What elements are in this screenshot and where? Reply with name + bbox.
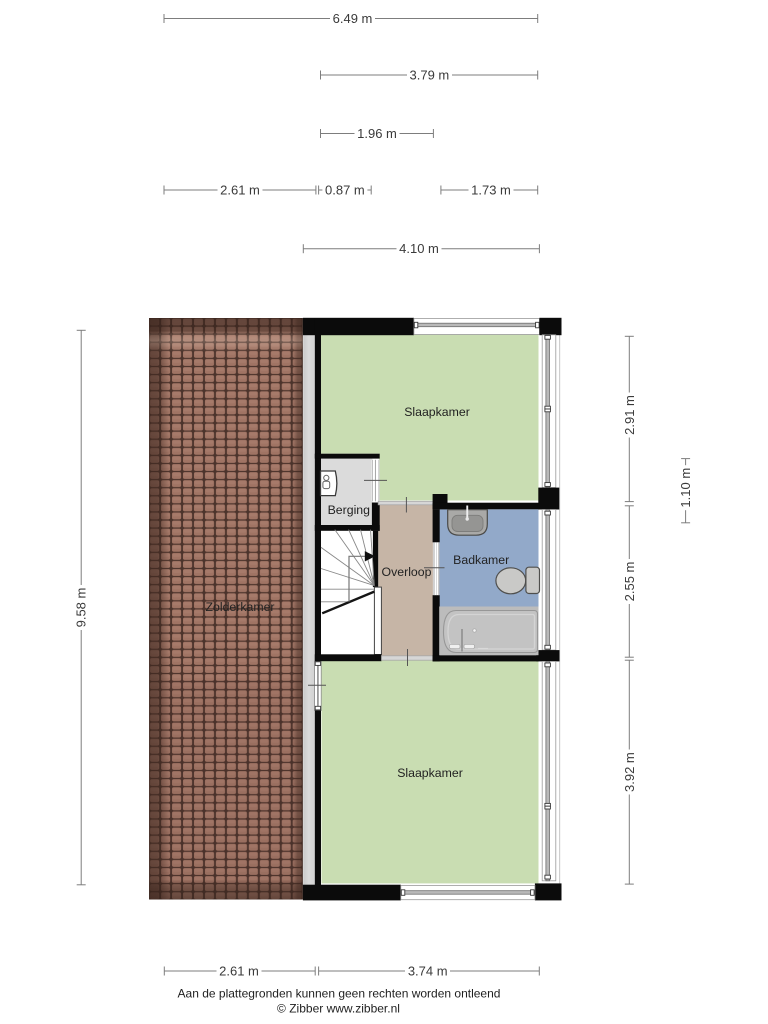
svg-text:Slaapkamer: Slaapkamer xyxy=(404,405,470,419)
svg-text:3.79 m: 3.79 m xyxy=(410,68,450,83)
svg-text:1.96 m: 1.96 m xyxy=(357,126,397,141)
svg-text:9.58 m: 9.58 m xyxy=(74,588,89,628)
svg-text:Badkamer: Badkamer xyxy=(453,553,509,567)
svg-text:0.87 m: 0.87 m xyxy=(325,183,365,198)
svg-text:6.49 m: 6.49 m xyxy=(333,11,373,26)
svg-text:Slaapkamer: Slaapkamer xyxy=(397,766,463,780)
svg-text:2.55 m: 2.55 m xyxy=(622,562,637,602)
svg-text:2.61 m: 2.61 m xyxy=(219,964,259,979)
svg-text:3.74 m: 3.74 m xyxy=(408,964,448,979)
svg-text:© Zibber www.zibber.nl: © Zibber www.zibber.nl xyxy=(277,1002,400,1016)
svg-text:1.10 m: 1.10 m xyxy=(678,468,693,508)
svg-text:1.73 m: 1.73 m xyxy=(471,183,511,198)
svg-text:Berging: Berging xyxy=(328,503,371,517)
svg-text:Overloop: Overloop xyxy=(382,565,432,579)
svg-text:Zolderkamer: Zolderkamer xyxy=(205,600,274,614)
svg-text:Aan de plattegronden kunnen ge: Aan de plattegronden kunnen geen rechten… xyxy=(178,987,501,1001)
svg-text:2.61 m: 2.61 m xyxy=(220,183,260,198)
svg-text:2.91 m: 2.91 m xyxy=(622,395,637,435)
svg-text:3.92 m: 3.92 m xyxy=(622,752,637,792)
svg-text:4.10 m: 4.10 m xyxy=(399,241,439,256)
